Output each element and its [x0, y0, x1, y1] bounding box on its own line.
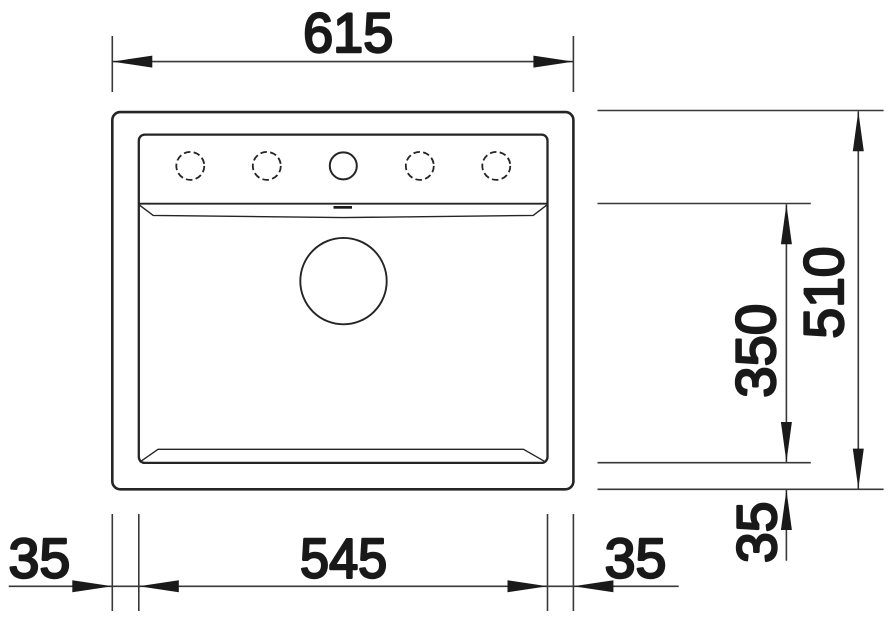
svg-text:350: 350	[724, 304, 787, 398]
svg-text:35: 35	[725, 502, 788, 564]
svg-text:510: 510	[792, 246, 855, 338]
svg-text:35: 35	[9, 526, 71, 589]
svg-text:545: 545	[300, 526, 387, 589]
svg-text:615: 615	[303, 1, 393, 64]
svg-text:35: 35	[605, 526, 667, 589]
